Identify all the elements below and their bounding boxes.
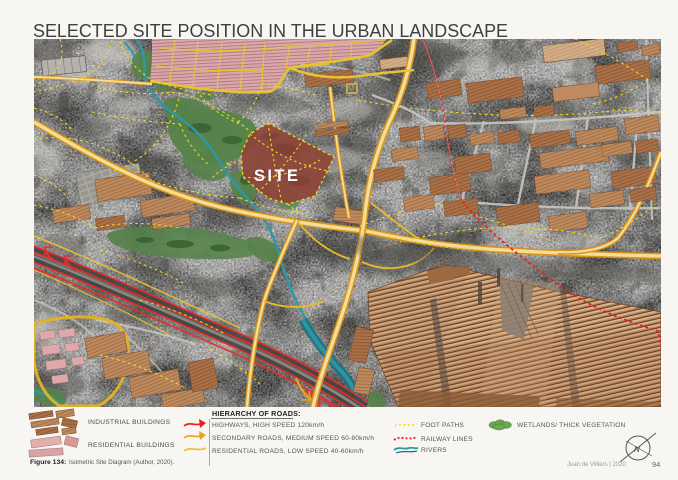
svg-text:N: N	[634, 445, 640, 454]
svg-text:94: 94	[652, 460, 660, 469]
svg-text:Figure 134:: Figure 134:	[30, 459, 66, 466]
svg-text:RIVERS: RIVERS	[421, 447, 447, 454]
svg-text:SELECTED SITE POSITION IN THE: SELECTED SITE POSITION IN THE URBAN LAND…	[33, 21, 508, 41]
svg-text:HIERARCHY OF ROADS:: HIERARCHY OF ROADS:	[212, 409, 301, 418]
svg-text:RESIDENTIAL BUILDINGS: RESIDENTIAL BUILDINGS	[88, 442, 175, 449]
svg-text:RESIDENTIAL ROADS, LOW SPEED 4: RESIDENTIAL ROADS, LOW SPEED 40-60km/h	[212, 448, 364, 455]
svg-text:Juan de Villiers | 2020: Juan de Villiers | 2020	[567, 462, 626, 468]
svg-text:HIGHWAYS, HIGH SPEED 120km/h: HIGHWAYS, HIGH SPEED 120km/h	[212, 422, 324, 429]
svg-text:FOOT PATHS: FOOT PATHS	[421, 422, 464, 429]
svg-text:Isometric Site Diagram (Author: Isometric Site Diagram (Author, 2020).	[69, 459, 175, 466]
svg-text:SITE: SITE	[254, 167, 300, 185]
svg-text:RAILWAY LINES: RAILWAY LINES	[421, 436, 473, 443]
svg-text:WETLANDS/ THICK VEGETATION: WETLANDS/ THICK VEGETATION	[517, 422, 626, 429]
svg-text:INDUSTRIAL BUILDINGS: INDUSTRIAL BUILDINGS	[88, 419, 171, 426]
svg-text:SECONDARY ROADS, MEDIUM SPEED: SECONDARY ROADS, MEDIUM SPEED 60-80km/h	[212, 435, 374, 442]
